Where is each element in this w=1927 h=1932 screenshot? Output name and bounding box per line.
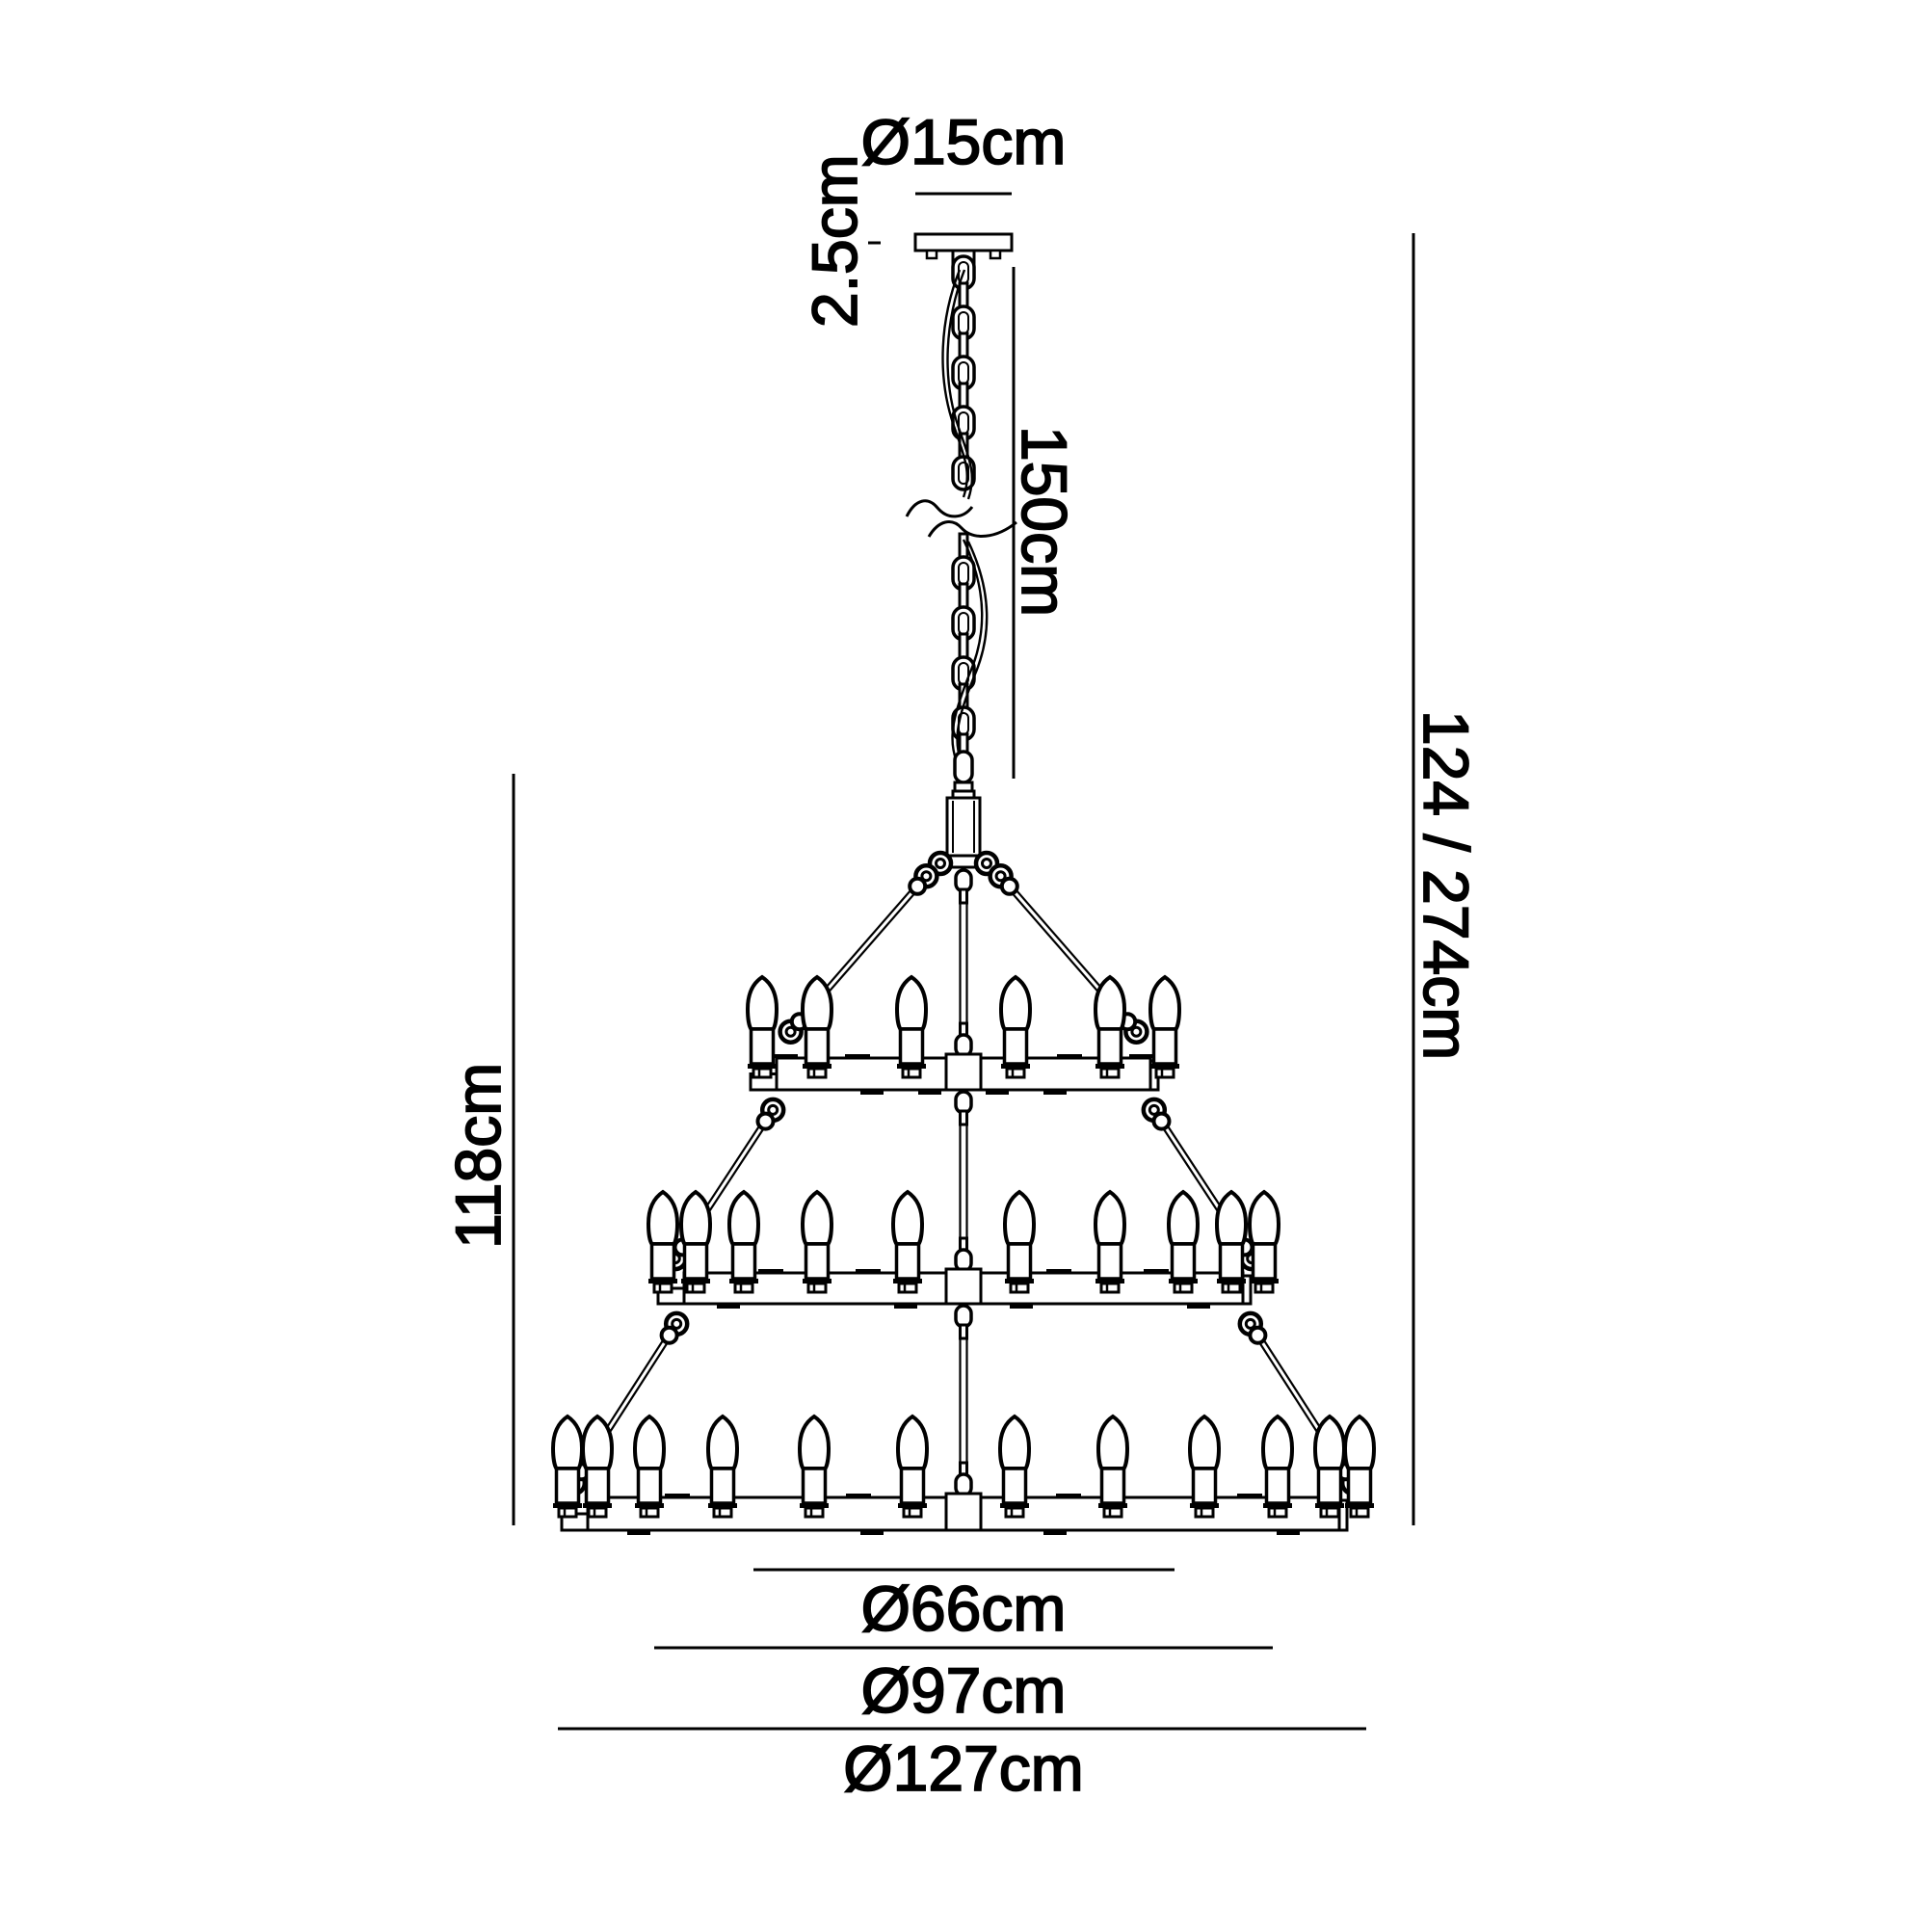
svg-text:118cm: 118cm xyxy=(442,1063,514,1249)
svg-text:124 / 274cm: 124 / 274cm xyxy=(1411,710,1482,1060)
svg-text:Ø66cm: Ø66cm xyxy=(861,1573,1067,1644)
svg-text:2.5cm: 2.5cm xyxy=(799,154,870,328)
svg-text:Ø15cm: Ø15cm xyxy=(861,106,1067,177)
svg-text:Ø97cm: Ø97cm xyxy=(861,1654,1067,1726)
svg-text:Ø127cm: Ø127cm xyxy=(843,1733,1083,1804)
svg-text:150cm: 150cm xyxy=(1009,426,1080,617)
